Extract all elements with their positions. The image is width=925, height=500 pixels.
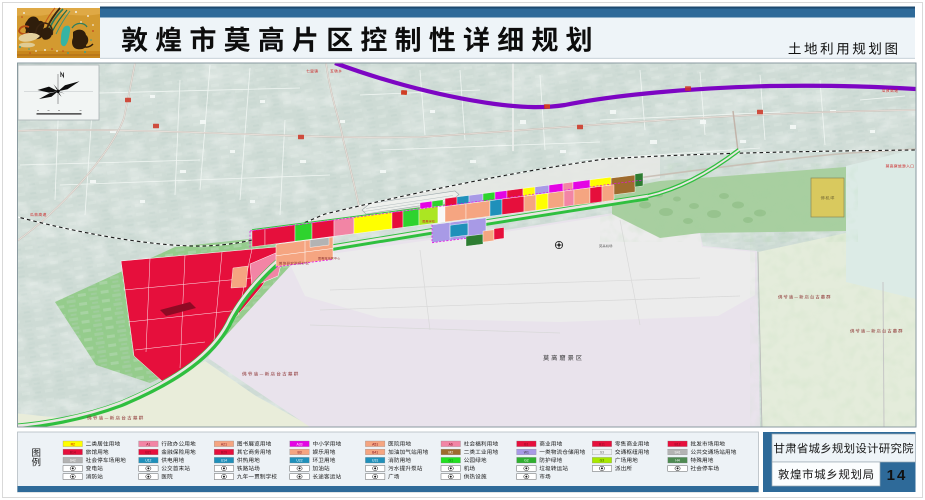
svg-text:B41: B41 (372, 451, 378, 455)
svg-text:U22: U22 (296, 459, 302, 463)
svg-text:B1: B1 (524, 442, 528, 446)
svg-text:S41: S41 (675, 451, 681, 455)
svg-text:S3: S3 (600, 451, 604, 455)
svg-text:A6: A6 (449, 442, 453, 446)
svg-text:H4: H4 (675, 459, 679, 463)
svg-text:M2: M2 (448, 451, 453, 455)
svg-text:B12: B12 (675, 442, 681, 446)
svg-text:S42: S42 (70, 459, 76, 463)
svg-text:W1: W1 (524, 451, 529, 455)
svg-text:U14: U14 (221, 459, 227, 463)
svg-text:A21: A21 (221, 442, 227, 446)
svg-text:B29: B29 (221, 451, 227, 455)
svg-text:B3: B3 (297, 451, 301, 455)
svg-text:B14: B14 (70, 451, 76, 455)
svg-text:B11: B11 (599, 442, 605, 446)
svg-text:R2: R2 (71, 442, 75, 446)
svg-text:G1: G1 (448, 459, 453, 463)
svg-text:B21: B21 (145, 451, 151, 455)
svg-text:A51: A51 (372, 442, 378, 446)
svg-text:G3: G3 (600, 459, 605, 463)
svg-text:14: 14 (887, 467, 908, 484)
svg-text:U12: U12 (145, 459, 151, 463)
svg-text:A1: A1 (146, 442, 150, 446)
svg-text:A33: A33 (297, 442, 303, 446)
svg-text:G2: G2 (524, 459, 529, 463)
svg-text:U31: U31 (372, 459, 378, 463)
